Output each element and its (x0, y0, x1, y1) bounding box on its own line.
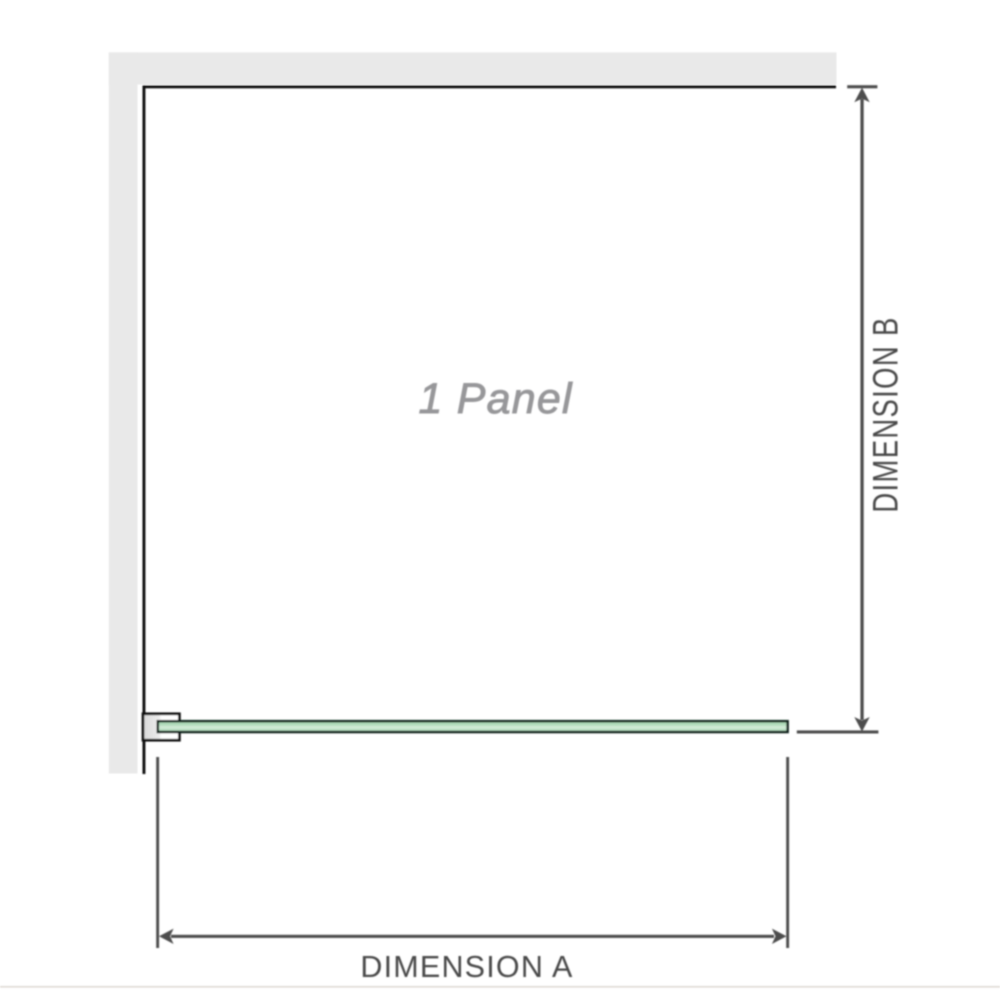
svg-text:1 Panel: 1 Panel (419, 375, 573, 423)
svg-text:DIMENSION B: DIMENSION B (865, 316, 905, 512)
svg-text:DIMENSION A: DIMENSION A (360, 950, 573, 984)
